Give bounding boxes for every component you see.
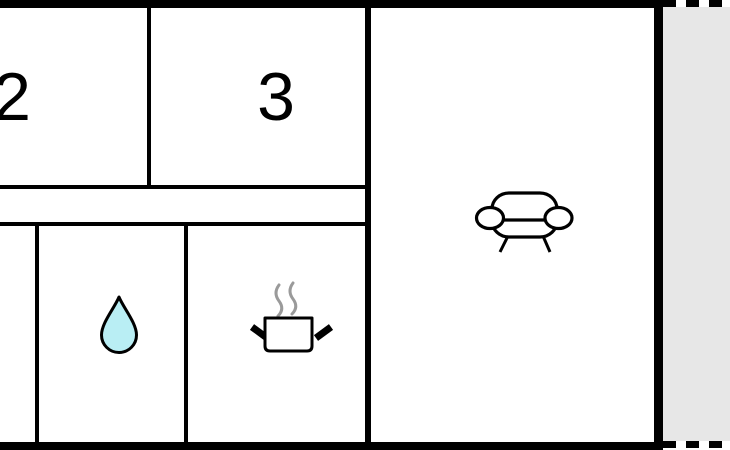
wall-top <box>0 0 663 8</box>
wall-bath-kitchen-divider <box>184 226 188 442</box>
wall-hallway-bottom <box>0 222 365 226</box>
wall-right <box>654 0 663 450</box>
water-drop-icon <box>98 294 140 356</box>
floor-plan: 2 3 <box>0 0 730 450</box>
room-closet <box>0 226 35 442</box>
wall-living-room-left <box>365 8 371 442</box>
room-2-label: 2 <box>0 63 34 131</box>
wall-bedroom-divider <box>147 8 151 185</box>
room-terrace <box>663 5 730 441</box>
sofa-icon <box>470 186 580 258</box>
wall-hallway-top <box>0 185 365 189</box>
wall-closet-divider <box>35 226 39 442</box>
room-3-label: 3 <box>250 63 302 131</box>
steaming-pot-icon <box>248 278 336 362</box>
terrace-dashed-border-bottom <box>663 441 730 448</box>
room-hallway <box>0 189 365 222</box>
terrace-dashed-border-top <box>663 0 730 7</box>
wall-bottom <box>0 442 663 450</box>
